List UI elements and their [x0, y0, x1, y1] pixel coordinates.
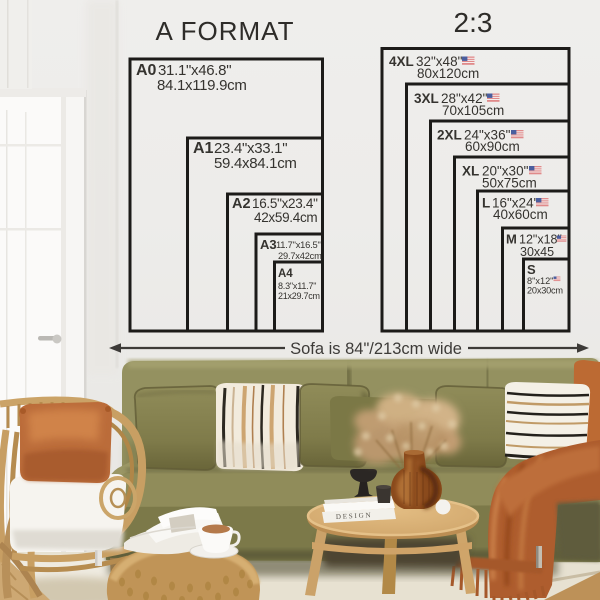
svg-text:60x90cm: 60x90cm — [465, 139, 520, 154]
svg-text:29.7x42cm: 29.7x42cm — [278, 251, 322, 261]
svg-text:A0: A0 — [136, 62, 157, 79]
svg-text:XL: XL — [462, 164, 479, 179]
svg-text:40x60cm: 40x60cm — [493, 207, 548, 222]
svg-text:20x30cm: 20x30cm — [527, 286, 563, 296]
svg-text:70x105cm: 70x105cm — [442, 103, 504, 118]
svg-text:30x45: 30x45 — [520, 245, 554, 259]
svg-text:A1: A1 — [193, 140, 214, 157]
svg-text:Sofa is 84"/213cm wide: Sofa is 84"/213cm wide — [290, 340, 462, 358]
svg-text:84.1x119.9cm: 84.1x119.9cm — [157, 77, 247, 94]
svg-text:2XL: 2XL — [437, 128, 462, 143]
svg-text:80x120cm: 80x120cm — [417, 66, 479, 81]
svg-text:A3: A3 — [260, 237, 277, 252]
svg-text:8.3"x11.7": 8.3"x11.7" — [278, 281, 316, 291]
svg-text:L: L — [482, 196, 490, 211]
svg-text:42x59.4cm: 42x59.4cm — [254, 210, 317, 225]
svg-text:S: S — [527, 262, 536, 277]
svg-text:A4: A4 — [278, 268, 293, 280]
svg-text:4XL: 4XL — [389, 54, 414, 69]
svg-text:M: M — [506, 232, 517, 247]
svg-text:8"x12": 8"x12" — [527, 276, 553, 286]
svg-text:16.5"x23.4": 16.5"x23.4" — [252, 196, 318, 211]
svg-text:A2: A2 — [232, 196, 251, 212]
svg-text:3XL: 3XL — [414, 91, 439, 106]
svg-text:59.4x84.1cm: 59.4x84.1cm — [214, 155, 297, 172]
svg-text:11.7"x16.5": 11.7"x16.5" — [276, 240, 321, 250]
svg-text:21x29.7cm: 21x29.7cm — [278, 291, 320, 301]
svg-text:2:3: 2:3 — [454, 7, 493, 38]
svg-text:A FORMAT: A FORMAT — [156, 16, 295, 46]
svg-text:50x75cm: 50x75cm — [482, 176, 537, 191]
